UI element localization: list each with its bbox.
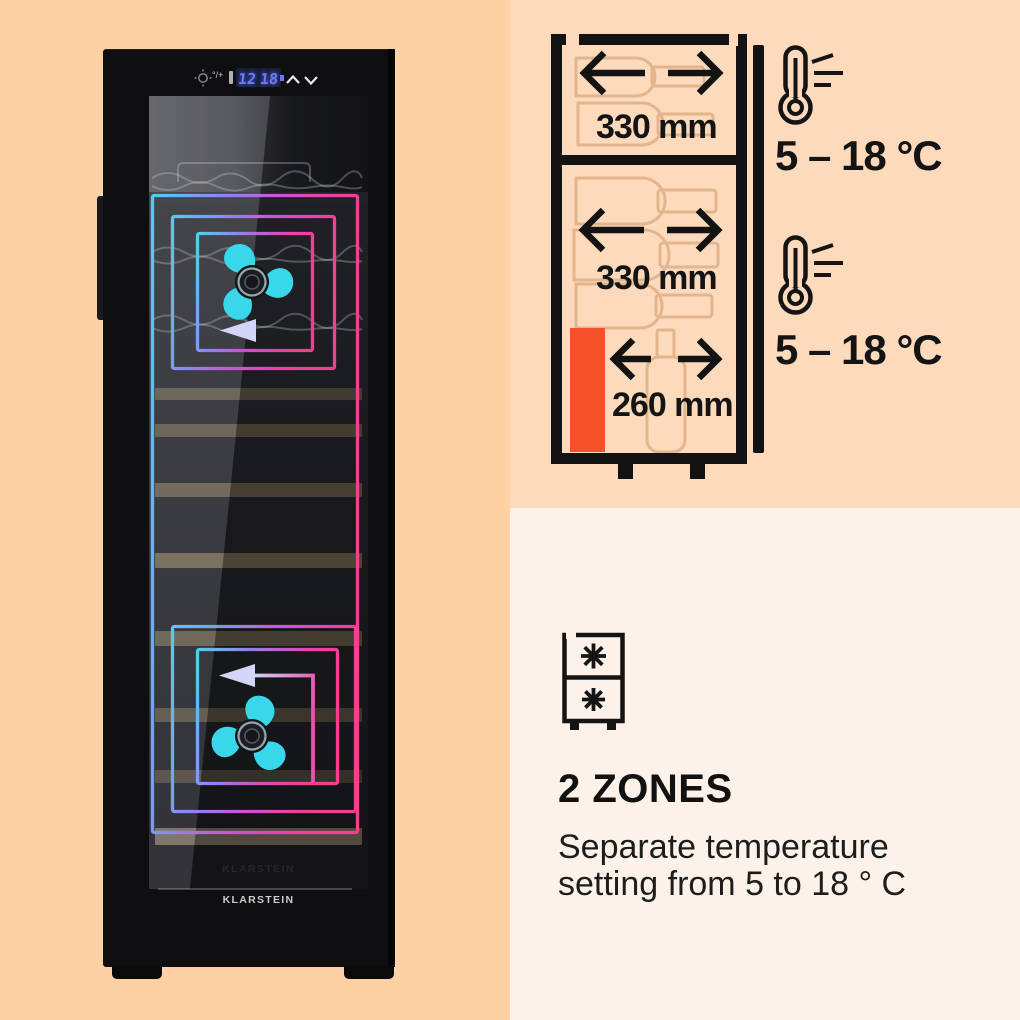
zone2-temp-range: 5 – 18 °C — [775, 329, 942, 371]
door-trim-line — [158, 888, 352, 890]
feature-description-line2: setting from 5 to 18 ° C — [558, 865, 906, 903]
feature-heading: 2 ZONES — [558, 768, 733, 810]
background-top-right — [510, 0, 1020, 508]
display-mode-label: °/+ — [212, 70, 223, 80]
display-zone1-temperature: 12 — [237, 70, 257, 88]
brand-reflection: KLARSTEIN — [149, 863, 368, 875]
background-bottom-right — [510, 508, 1020, 1020]
feature-description-line1: Separate temperature — [558, 828, 889, 866]
product-infographic: KLARSTEIN KLARSTEIN 12 18 °/+ — [0, 0, 1020, 1020]
shelf-width-label-2: 330 mm — [596, 259, 717, 298]
shelf-width-label-3: 260 mm — [612, 386, 733, 425]
display-zone2-temperature: 18 — [259, 70, 279, 88]
wine-fridge: KLARSTEIN KLARSTEIN 12 18 °/+ — [0, 0, 510, 1020]
fridge-foot-right — [344, 965, 394, 979]
shelf-width-label-1: 330 mm — [596, 108, 717, 147]
glass-door: KLARSTEIN — [149, 96, 368, 889]
fridge-foot-left — [112, 965, 162, 979]
brand-logo: KLARSTEIN — [149, 894, 368, 906]
zone1-temp-range: 5 – 18 °C — [775, 135, 942, 177]
fridge-right-edge — [388, 49, 395, 967]
